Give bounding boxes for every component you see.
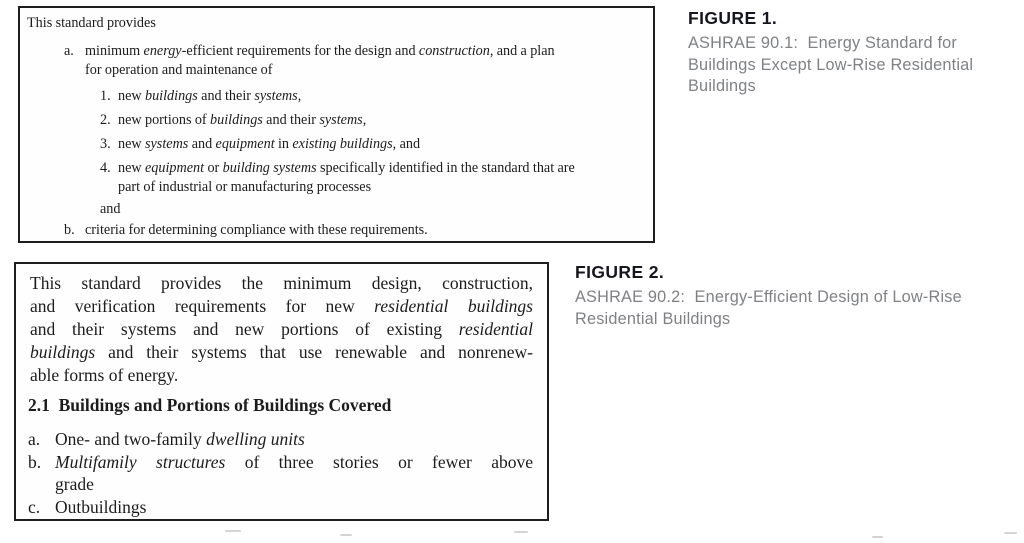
covered-item-b-text: Multifamily structures of three stories … — [28, 451, 533, 496]
list-item-b-text: criteria for determining compliance with… — [64, 221, 643, 240]
covered-marker-b: b. — [28, 451, 41, 474]
covered-item-a-line-1: One- and two-family dwelling units — [55, 428, 533, 451]
list-marker-b: b. — [64, 221, 75, 240]
figure1-caption-text: ASHRAE 90.1: Energy Standard for Buildin… — [688, 33, 1004, 98]
sub-item-1: 1. new buildings and their systems, — [100, 87, 643, 106]
scan-artifact — [225, 530, 241, 532]
covered-buildings-list: a. One- and two-family dwelling units b.… — [28, 428, 533, 519]
connector-and: and — [100, 200, 643, 219]
covered-item-b-line-1: Multifamily structures of three stories … — [55, 451, 533, 474]
paragraph-line-2: and verification requirements for new re… — [30, 295, 533, 318]
sub-marker-1: 1. — [100, 87, 111, 106]
figure1-label: FIGURE 1. — [688, 8, 1004, 29]
scan-artifact — [514, 531, 528, 533]
sub-item-3-text: new systems and equipment in existing bu… — [100, 135, 643, 154]
scan-artifact — [1004, 532, 1017, 534]
standard-901-scope-box: This standard provides a. minimum energy… — [18, 6, 655, 243]
scope-paragraph: This standard provides the minimum desig… — [30, 272, 533, 387]
sub-item-2-text: new portions of buildings and their syst… — [100, 111, 643, 130]
list-item-b: b. criteria for determining compliance w… — [64, 221, 643, 240]
covered-item-c-text: Outbuildings — [28, 496, 533, 519]
section-heading-2-1: 2.1 Buildings and Portions of Buildings … — [28, 394, 533, 416]
sub-marker-4: 4. — [100, 159, 111, 178]
covered-item-a-text: One- and two-family dwelling units — [28, 428, 533, 451]
page: This standard provides a. minimum energy… — [0, 0, 1024, 543]
paragraph-line-4: buildings and their systems that use ren… — [30, 341, 533, 364]
covered-marker-c: c. — [28, 496, 40, 519]
covered-item-c-line-1: Outbuildings — [55, 496, 533, 519]
sub-item-1-text: new buildings and their systems, — [100, 87, 643, 106]
figure2-label: FIGURE 2. — [575, 262, 1024, 283]
covered-item-b-line-2: grade — [55, 473, 533, 496]
paragraph-line-1: This standard provides the minimum desig… — [30, 272, 533, 295]
scope-intro: This standard provides — [27, 14, 643, 33]
sub-marker-2: 2. — [100, 111, 111, 130]
paragraph-line-5: able forms of energy. — [30, 364, 533, 387]
paragraph-line-3: and their systems and new portions of ex… — [30, 318, 533, 341]
list-item-a: a. minimum energy-efficient requirements… — [64, 42, 643, 80]
covered-item-a: a. One- and two-family dwelling units — [28, 428, 533, 451]
sub-item-3: 3. new systems and equipment in existing… — [100, 135, 643, 154]
sub-item-2: 2. new portions of buildings and their s… — [100, 111, 643, 130]
covered-marker-a: a. — [28, 428, 40, 451]
sub-item-4: 4. new equipment or building systems spe… — [100, 159, 643, 197]
scan-artifact — [340, 534, 352, 536]
figure2-caption-block: FIGURE 2. ASHRAE 90.2: Energy-Efficient … — [575, 262, 1024, 330]
figure2-caption-text: ASHRAE 90.2: Energy-Efficient Design of … — [575, 287, 1024, 330]
list-marker-a: a. — [64, 42, 74, 61]
scan-artifact — [872, 536, 883, 538]
covered-item-b: b. Multifamily structures of three stori… — [28, 451, 533, 496]
covered-item-c: c. Outbuildings — [28, 496, 533, 519]
standard-902-scope-box: This standard provides the minimum desig… — [14, 262, 549, 521]
figure1-caption-block: FIGURE 1. ASHRAE 90.1: Energy Standard f… — [688, 8, 1004, 98]
sub-item-4-text: new equipment or building systems specif… — [100, 159, 643, 197]
sub-marker-3: 3. — [100, 135, 111, 154]
list-item-a-text: minimum energy-efficient requirements fo… — [64, 42, 643, 80]
